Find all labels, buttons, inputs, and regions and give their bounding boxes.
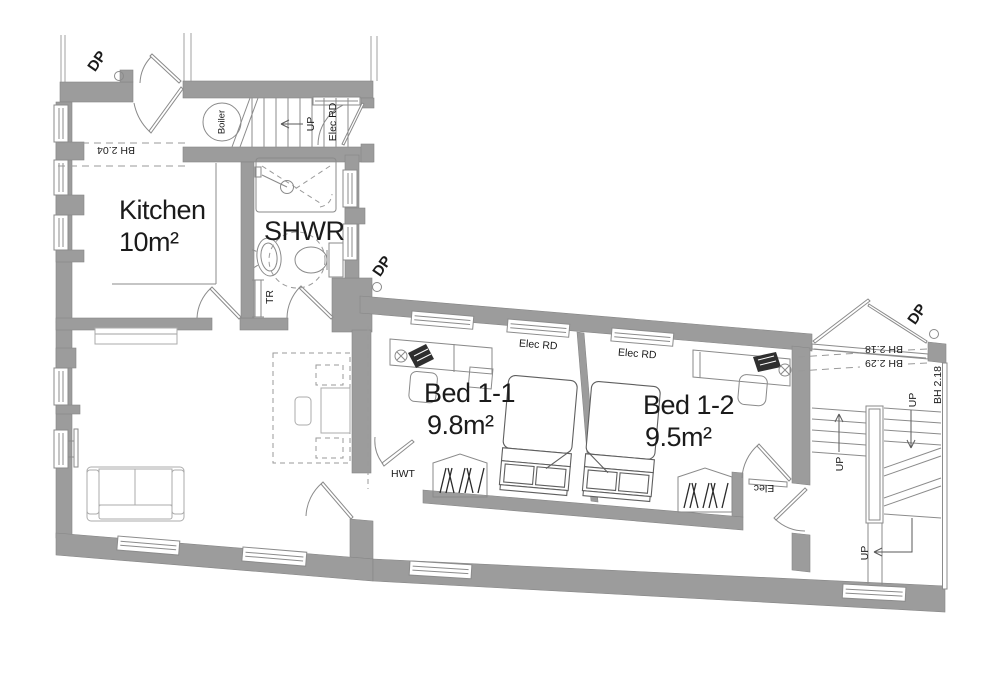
bed11-area-label: 9.8m² [427,410,494,440]
kitchen-area-label: 10m² [119,227,179,257]
floor-plan-canvas: Kitchen 10m² SHWR Bed 1-1 9.8m² Bed 1-2 … [0,0,991,700]
kitchen-label: Kitchen [119,195,206,225]
window [343,170,357,207]
bed11-radiator [433,454,487,497]
downpipe-icon [930,330,939,339]
boiler-label: Boiler [217,110,228,134]
desk-chair [737,374,768,406]
dp-label-top-left: DP [84,48,110,75]
up-label-bottom: UP [859,546,871,561]
sideboard [95,328,177,344]
bed11-label: Bed 1-1 [424,378,515,408]
window [54,215,68,250]
tr-label: TR [264,290,276,304]
power-socket-icon [395,350,407,362]
up-arrow-bottom [874,518,912,556]
shower-label: SHWR [264,216,345,246]
stairwell-door [318,103,364,145]
sofa [87,467,184,521]
laptop-icon [408,344,434,368]
dining-chair [295,397,311,425]
window [343,224,357,260]
laptop-icon [753,352,781,372]
hwt-label: HWT [391,468,415,480]
elec-rd-label-stairwell: Elec RD [327,102,339,141]
elec-rd-label-bed11: Elec RD [519,338,559,353]
bed12-door [742,444,791,481]
window [842,584,906,601]
bed11-door [375,437,414,466]
dp-label-middle: DP [369,253,395,280]
bh-204-label: BH 2.04 [97,144,135,156]
up-label-stairwell: UP [305,117,317,132]
kitchen-door [197,287,241,319]
shower-tray [255,158,336,212]
elec-panel-label: Elec [754,482,774,494]
dining-chair-ghost [316,438,343,458]
right-flight-treads [884,408,941,518]
window [54,368,68,405]
up-label-left-flight: UP [834,457,846,472]
shower-door [287,286,333,319]
dining-area [273,353,350,463]
bed12-label: Bed 1-2 [643,390,734,420]
window [54,430,68,468]
toilet-icon [295,243,343,277]
elec-rd-label-bed12: Elec RD [618,347,658,362]
dining-chair-ghost [316,365,343,385]
bh-229-label: BH 2.29 [865,357,903,369]
downpipe-icon [373,283,382,292]
bed12-radiator [678,468,732,512]
stair-break-lines [232,98,258,147]
lobby-landing-door [774,488,807,531]
living-lobby-door [306,482,353,519]
up-arrow-left-flight [835,414,843,452]
power-socket-icon [779,364,791,376]
up-label-right-flight: UP [907,393,919,408]
bed12-area-label: 9.5m² [645,422,712,452]
entrance-door [134,54,183,133]
window [54,160,68,195]
living-room [68,328,350,521]
window [54,105,68,142]
bh-218-right-label: BH 2.18 [932,366,944,404]
bh-218-label: BH 2.18 [865,343,903,355]
dp-label-top-right: DP [904,301,930,328]
floor-plan-drawing: Kitchen 10m² SHWR Bed 1-1 9.8m² Bed 1-2 … [0,0,991,700]
down-arrow-right-flight [907,410,915,448]
